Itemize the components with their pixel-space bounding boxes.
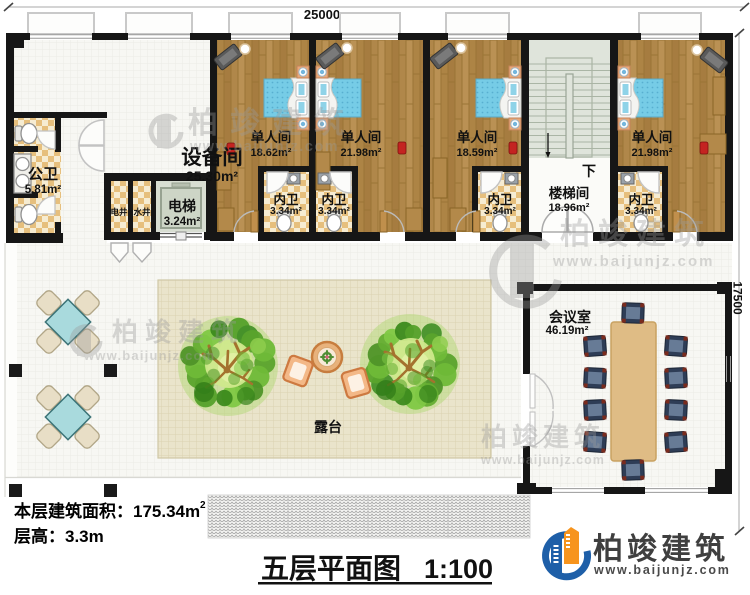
svg-text:17500: 17500 <box>731 281 745 315</box>
svg-text:www.baijunjz.com: www.baijunjz.com <box>83 348 215 363</box>
svg-text:内卫: 内卫 <box>628 192 654 207</box>
svg-text:www.baijunjz.com: www.baijunjz.com <box>189 139 339 155</box>
svg-text:层高：3.3m: 层高：3.3m <box>14 526 104 546</box>
svg-text:18.96m²: 18.96m² <box>549 202 590 214</box>
svg-text:3.34m²: 3.34m² <box>484 206 516 217</box>
svg-text:www.baijunjz.com: www.baijunjz.com <box>552 253 714 270</box>
svg-text:本层建筑面积：175.34m: 本层建筑面积：175.34m <box>14 501 200 521</box>
svg-text:25.30m²: 25.30m² <box>186 168 238 184</box>
svg-text:3.34m²: 3.34m² <box>270 206 302 217</box>
svg-text:46.19m²: 46.19m² <box>546 325 589 337</box>
svg-text:18.59m²: 18.59m² <box>457 147 498 159</box>
svg-text:21.98m²: 21.98m² <box>632 147 673 159</box>
svg-text:2: 2 <box>200 500 206 511</box>
svg-text:3.34m²: 3.34m² <box>625 206 657 217</box>
svg-text:水井: 水井 <box>132 207 151 217</box>
svg-text:www.baijunjz.com: www.baijunjz.com <box>593 563 731 577</box>
svg-text:单人间: 单人间 <box>457 129 498 145</box>
svg-text:21.98m²: 21.98m² <box>341 147 382 159</box>
svg-text:电井: 电井 <box>110 207 128 217</box>
svg-text:3.24m²: 3.24m² <box>164 216 201 228</box>
svg-text:楼梯间: 楼梯间 <box>549 185 590 201</box>
svg-text:内卫: 内卫 <box>321 192 347 207</box>
svg-text:柏竣建筑: 柏竣建筑 <box>560 217 712 251</box>
svg-text:柏竣建筑: 柏竣建筑 <box>112 317 244 347</box>
svg-text:25000: 25000 <box>304 7 340 22</box>
svg-text:5.81m²: 5.81m² <box>25 184 62 196</box>
svg-text:内卫: 内卫 <box>273 192 299 207</box>
svg-text:柏竣建筑: 柏竣建筑 <box>593 532 729 566</box>
svg-text:单人间: 单人间 <box>632 129 673 145</box>
svg-text:柏竣建筑: 柏竣建筑 <box>188 106 356 140</box>
svg-text:下: 下 <box>582 163 596 179</box>
svg-text:3.34m²: 3.34m² <box>318 206 350 217</box>
svg-text:电梯: 电梯 <box>168 198 196 214</box>
svg-text:五层平面图: 五层平面图 <box>261 553 401 584</box>
svg-text:公卫: 公卫 <box>28 166 58 183</box>
svg-text:会议室: 会议室 <box>549 309 591 325</box>
svg-text:露台: 露台 <box>314 419 342 435</box>
svg-text:www.baijunjz.com: www.baijunjz.com <box>480 453 605 467</box>
svg-text:柏竣建筑: 柏竣建筑 <box>481 422 605 452</box>
svg-text:内卫: 内卫 <box>487 192 513 207</box>
svg-text:1:100: 1:100 <box>424 554 493 584</box>
